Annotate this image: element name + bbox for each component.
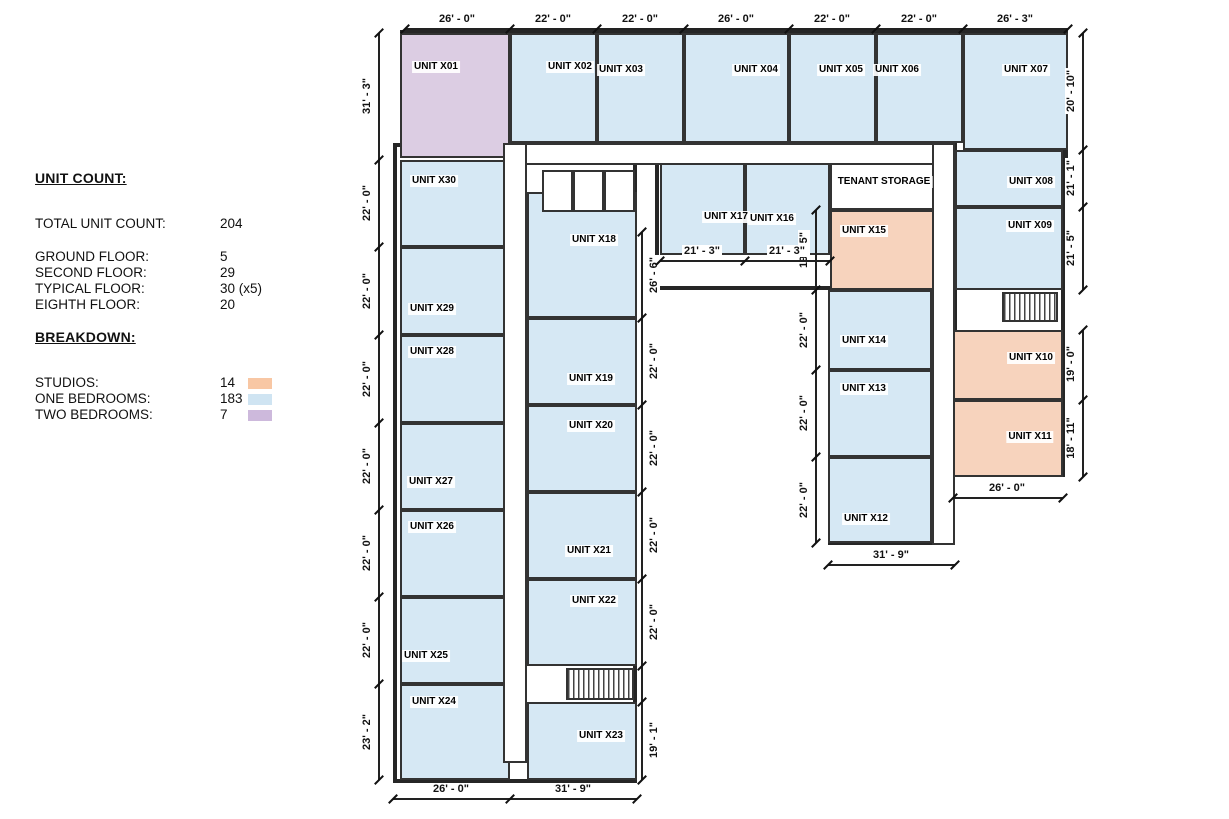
dimension-label: 22' - 0": [361, 620, 373, 660]
dimension-label: 22' - 0": [648, 515, 660, 555]
unit-label-x05: UNIT X05: [817, 64, 865, 76]
unit-room-x29: [400, 247, 510, 335]
dimension-label: 22' - 0": [533, 13, 573, 25]
unit-room-x21: [527, 492, 637, 579]
corridor: [503, 143, 955, 165]
stair-hatch: [1002, 292, 1058, 322]
dimension-label: 26' - 0": [987, 482, 1027, 494]
dimension-label: 19' - 0": [1065, 344, 1077, 384]
unit-label-x16: UNIT X16: [748, 213, 796, 225]
unit-label-x17: UNIT X17: [702, 211, 750, 223]
breakdown-row: ONE BEDROOMS:183: [35, 391, 335, 407]
breakdown-row-label: TWO BEDROOMS:: [35, 407, 153, 423]
legend-row-label: TYPICAL FLOOR:: [35, 281, 145, 297]
legend-row: GROUND FLOOR:5: [35, 249, 335, 265]
dimension-label: 26' - 0": [437, 13, 477, 25]
unit-room-x20: [527, 405, 637, 492]
unit-label-x10: UNIT X10: [1007, 352, 1055, 364]
dimension-line: [393, 798, 637, 800]
unit-label-x03: UNIT X03: [597, 64, 645, 76]
dimension-line: [641, 232, 643, 780]
elevator-cell: [542, 170, 573, 212]
dimension-label: 18' - 11": [1065, 415, 1077, 460]
unit-label-x11: UNIT X11: [1006, 431, 1053, 443]
unit-label-x04: UNIT X04: [732, 64, 780, 76]
unit-label-x18: UNIT X18: [570, 234, 618, 246]
breakdown-rows: STUDIOS:14ONE BEDROOMS:183TWO BEDROOMS:7: [35, 375, 335, 423]
dimension-label: 22' - 0": [648, 341, 660, 381]
legend-row-value: 30 (x5): [220, 281, 262, 297]
unit-label-x15: UNIT X15: [840, 225, 888, 237]
unit-room-x15: [830, 210, 938, 290]
unit-room-x06: [876, 33, 963, 143]
unit-label-tenant-storage: TENANT STORAGE: [836, 176, 933, 188]
legend-title: UNIT COUNT:: [35, 170, 335, 186]
corridor: [503, 143, 527, 763]
unit-room-x30: [400, 160, 510, 247]
unit-label-x26: UNIT X26: [408, 521, 456, 533]
dimension-label: 19' - 1": [648, 720, 660, 760]
unit-label-x09: UNIT X09: [1006, 220, 1054, 232]
unit-label-x27: UNIT X27: [407, 476, 455, 488]
legend-row: TOTAL UNIT COUNT:204: [35, 216, 335, 232]
dimension-label: 23' - 2": [361, 712, 373, 752]
dimension-label: 31' - 9": [553, 783, 593, 795]
dimension-label: 26' - 0": [431, 783, 471, 795]
unit-room-x10: [953, 330, 1063, 400]
unit-label-x13: UNIT X13: [840, 383, 888, 395]
dimension-label: 31' - 9": [871, 549, 911, 561]
unit-label-x28: UNIT X28: [408, 346, 456, 358]
dimension-label: 26' - 3": [995, 13, 1035, 25]
breakdown-row-label: STUDIOS:: [35, 375, 99, 391]
color-swatch-two: [248, 410, 272, 421]
unit-room-x17: [660, 160, 745, 255]
unit-label-x01: UNIT X01: [412, 61, 460, 73]
unit-room-x12: [828, 457, 932, 543]
unit-label-x08: UNIT X08: [1007, 176, 1055, 188]
dimension-label: 22' - 0": [361, 359, 373, 399]
dimension-line: [1082, 330, 1084, 477]
unit-label-x29: UNIT X29: [408, 303, 456, 315]
unit-label-x20: UNIT X20: [567, 420, 615, 432]
elevator-cell: [604, 170, 635, 212]
dimension-label: 22' - 0": [361, 271, 373, 311]
dimension-label: 22' - 0": [798, 393, 810, 433]
breakdown-row-value: 7: [220, 407, 228, 423]
dimension-label: 22' - 0": [361, 183, 373, 223]
dimension-line: [953, 497, 1063, 499]
dimension-label: 22' - 0": [798, 310, 810, 350]
elevator-cell: [573, 170, 604, 212]
breakdown-row: TWO BEDROOMS:7: [35, 407, 335, 423]
dimension-label: 21' - 1": [1065, 158, 1077, 198]
legend-row-value: 29: [220, 265, 235, 281]
floorplan-canvas: UNIT COUNT: TOTAL UNIT COUNT:204GROUND F…: [0, 0, 1229, 819]
unit-room-x02: [510, 33, 597, 143]
dimension-label: 22' - 0": [620, 13, 660, 25]
legend-row-value: 5: [220, 249, 228, 265]
legend-row-value: 20: [220, 297, 235, 313]
color-swatch-studio: [248, 378, 272, 389]
unit-label-x06: UNIT X06: [873, 64, 921, 76]
dimension-label: 22' - 0": [361, 446, 373, 486]
unit-label-x24: UNIT X24: [410, 696, 458, 708]
dimension-label: 22' - 0": [899, 13, 939, 25]
unit-label-x14: UNIT X14: [840, 335, 888, 347]
unit-label-x07: UNIT X07: [1002, 64, 1050, 76]
unit-label-x22: UNIT X22: [570, 595, 618, 607]
breakdown-title: BREAKDOWN:: [35, 329, 335, 345]
breakdown-row-value: 14: [220, 375, 235, 391]
legend-row: TYPICAL FLOOR:30 (x5): [35, 281, 335, 297]
legend-row-label: TOTAL UNIT COUNT:: [35, 216, 166, 232]
dimension-line: [1082, 33, 1084, 290]
unit-room-x03: [597, 33, 684, 143]
dimension-label: 26' - 0": [716, 13, 756, 25]
legend-row-label: EIGHTH FLOOR:: [35, 297, 140, 313]
unit-room-x05: [789, 33, 876, 143]
unit-room-x22: [527, 579, 637, 666]
unit-label-x12: UNIT X12: [842, 513, 890, 525]
color-swatch-one: [248, 394, 272, 405]
dimension-label: 21' - 5": [1065, 228, 1077, 268]
unit-room-x27: [400, 423, 510, 510]
unit-count-legend: UNIT COUNT: TOTAL UNIT COUNT:204GROUND F…: [35, 170, 335, 423]
legend-row-label: SECOND FLOOR:: [35, 265, 147, 281]
legend-row-label: GROUND FLOOR:: [35, 249, 149, 265]
unit-label-x21: UNIT X21: [565, 545, 613, 557]
breakdown-row: STUDIOS:14: [35, 375, 335, 391]
unit-room-x25: [400, 597, 510, 684]
legend-row-value: 204: [220, 216, 243, 232]
unit-room-x04: [684, 33, 789, 143]
legend-row: EIGHTH FLOOR:20: [35, 297, 335, 313]
breakdown-row-value: 183: [220, 391, 243, 407]
unit-label-x19: UNIT X19: [567, 373, 615, 385]
stair-hatch: [566, 668, 634, 700]
legend-rows: TOTAL UNIT COUNT:204GROUND FLOOR:5SECOND…: [35, 216, 335, 313]
unit-room-x19: [527, 318, 637, 405]
corridor: [932, 143, 955, 545]
unit-room-x07: [963, 33, 1068, 150]
dimension-label: 22' - 0": [648, 602, 660, 642]
unit-room-x14: [828, 290, 932, 370]
dimension-label: 20' - 10": [1065, 68, 1077, 114]
dimension-line: [828, 564, 955, 566]
dimension-label: 22' - 0": [798, 480, 810, 520]
breakdown-row-label: ONE BEDROOMS:: [35, 391, 151, 407]
unit-label-x25: UNIT X25: [402, 650, 450, 662]
dimension-line: [378, 33, 380, 780]
dimension-label: 31' - 3": [361, 76, 373, 116]
unit-label-x30: UNIT X30: [410, 175, 458, 187]
dimension-label: 22' - 0": [812, 13, 852, 25]
unit-label-x23: UNIT X23: [577, 730, 625, 742]
unit-label-x02: UNIT X02: [546, 61, 594, 73]
dimension-label: 21' - 3": [682, 245, 722, 257]
dimension-label: 22' - 0": [361, 533, 373, 573]
dimension-line: [405, 28, 1068, 30]
dimension-label: 22' - 0": [648, 428, 660, 468]
dimension-label: 21' - 3": [767, 245, 807, 257]
unit-room-x01: [400, 33, 510, 158]
legend-row: SECOND FLOOR:29: [35, 265, 335, 281]
